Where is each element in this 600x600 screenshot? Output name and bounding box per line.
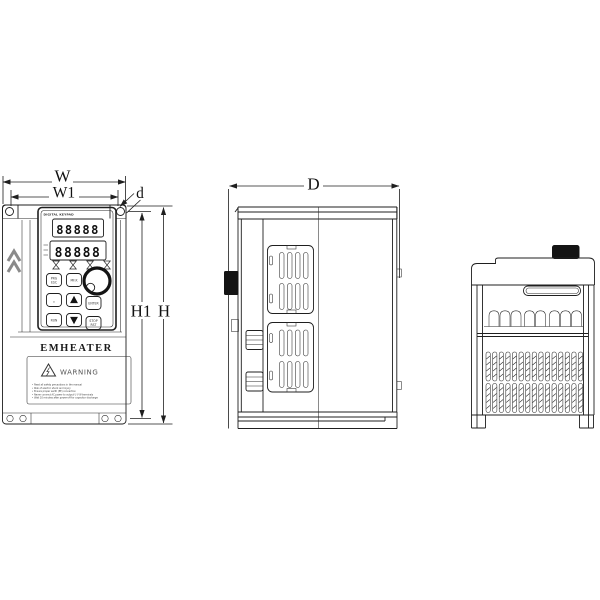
shift-label: »	[53, 300, 55, 304]
front-view: DIGITAL KEYPAD 88888 88888 PRG ESC MF.K …	[3, 205, 132, 424]
heatsink-vent-slots	[486, 352, 583, 413]
brand-label: EMHEATER	[40, 343, 112, 354]
potentiometer-knob	[84, 268, 110, 294]
warning-title: WARNING	[60, 369, 98, 377]
dim-w1-label: W1	[53, 185, 75, 202]
bottom-mounting-slots	[3, 413, 127, 424]
keypad-buttons: PRG ESC MF.K » ENTER RUN STOP RST	[47, 268, 111, 330]
cover-latch	[232, 320, 239, 332]
mfk-label: MF.K	[71, 279, 79, 283]
dim-h1-label: H1	[131, 302, 152, 321]
rst-label: RST	[90, 323, 96, 327]
esc-label: ESC	[51, 281, 57, 285]
warning-triangle-icon	[42, 364, 56, 376]
lightning-bolt-icon	[46, 368, 49, 376]
dim-d-label: d	[136, 185, 144, 202]
unit-pointer-marks	[44, 245, 49, 255]
drawing-svg: DIGITAL KEYPAD 88888 88888 PRG ESC MF.K …	[0, 0, 600, 600]
side-vent-panel-upper	[268, 246, 314, 314]
foot-right	[580, 415, 594, 428]
foot-left	[472, 415, 486, 428]
rear-clip-upper	[397, 269, 402, 277]
mounting-tab-left	[3, 205, 19, 219]
mounting-hole-top-right	[117, 208, 125, 216]
keypad-header-label: DIGITAL KEYPAD	[44, 213, 75, 217]
rear-view	[472, 246, 595, 429]
mounting-hole-top-left	[6, 208, 14, 216]
run-label: RUN	[51, 319, 58, 323]
vfd-dimension-drawing: DIGITAL KEYPAD 88888 88888 PRG ESC MF.K …	[0, 0, 600, 600]
keypad-tab	[225, 272, 239, 295]
display-lower-value: 88888	[55, 246, 102, 261]
dim-h-label: H	[158, 302, 170, 321]
enter-label: ENTER	[88, 301, 99, 305]
side-vent-panel-lower	[268, 323, 314, 393]
dim-w-label: W	[54, 167, 71, 186]
dim-depth-label: D	[307, 175, 319, 194]
warning-line-5: • Wait 10 minutes after power-off for ca…	[32, 397, 98, 400]
chevron-logo-icon	[8, 251, 20, 272]
rear-knob	[553, 246, 580, 259]
arch-vents	[484, 311, 583, 327]
up-arrow-icon	[71, 297, 77, 303]
handle-recess	[524, 286, 581, 296]
down-arrow-icon	[71, 317, 77, 323]
warning-label: WARNING • Read all safety precautions in…	[27, 357, 131, 405]
top-cap	[472, 258, 595, 285]
terminal-hooks	[246, 331, 263, 392]
rear-clip-lower	[397, 382, 402, 390]
display-upper-value: 88888	[56, 223, 100, 237]
side-view: D	[225, 175, 402, 429]
